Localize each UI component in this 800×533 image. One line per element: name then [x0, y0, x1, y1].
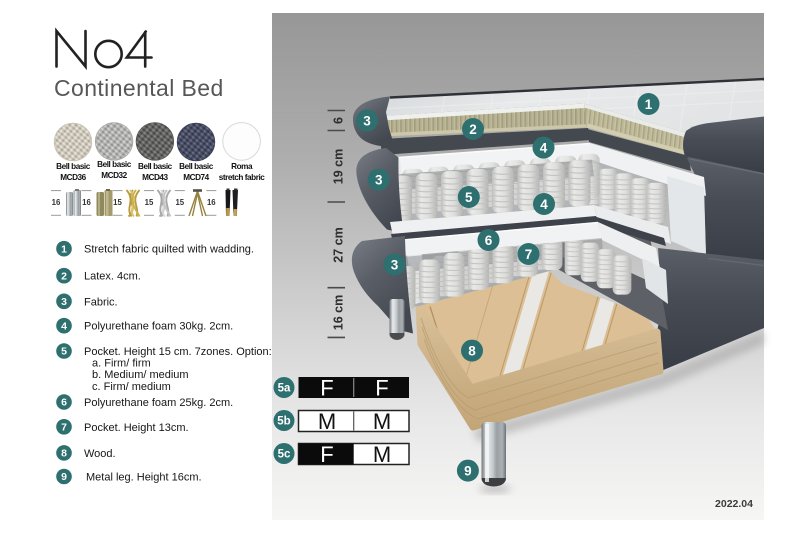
svg-text:Continental Bed: Continental Bed — [54, 75, 224, 101]
svg-text:Latex. 4cm.: Latex. 4cm. — [84, 271, 141, 283]
svg-text:15: 15 — [145, 198, 154, 207]
svg-text:6: 6 — [332, 117, 346, 124]
svg-text:9: 9 — [61, 471, 67, 483]
svg-text:Bell basic: Bell basic — [138, 162, 173, 171]
svg-text:Polyurethane foam 25kg. 2cm.: Polyurethane foam 25kg. 2cm. — [84, 397, 233, 409]
svg-text:16: 16 — [207, 198, 216, 207]
svg-text:16: 16 — [52, 198, 61, 207]
svg-text:Bell basic: Bell basic — [97, 160, 132, 169]
svg-text:b. Medium/ medium: b. Medium/ medium — [92, 369, 189, 381]
svg-text:4: 4 — [540, 140, 548, 155]
svg-text:Bell basic: Bell basic — [56, 162, 91, 171]
svg-text:9: 9 — [464, 463, 472, 478]
svg-text:2: 2 — [61, 270, 67, 282]
svg-text:3: 3 — [61, 296, 67, 308]
svg-text:7: 7 — [61, 422, 67, 434]
svg-text:M: M — [373, 409, 391, 434]
svg-text:Polyurethane foam 30kg. 2cm.: Polyurethane foam 30kg. 2cm. — [84, 321, 233, 333]
svg-text:8: 8 — [61, 448, 67, 460]
svg-text:5a: 5a — [278, 383, 291, 395]
svg-text:16: 16 — [82, 198, 91, 207]
svg-text:c. Firm/ medium: c. Firm/ medium — [92, 381, 171, 393]
svg-text:Wood.: Wood. — [84, 448, 116, 460]
svg-text:F: F — [375, 376, 388, 401]
svg-text:stretch fabric: stretch fabric — [219, 173, 265, 182]
svg-text:MCD36: MCD36 — [60, 173, 86, 182]
svg-text:F: F — [320, 376, 333, 401]
svg-text:6: 6 — [61, 397, 67, 409]
svg-text:M: M — [373, 442, 391, 467]
svg-text:5: 5 — [465, 190, 473, 205]
svg-text:4: 4 — [540, 197, 548, 212]
svg-text:MCD32: MCD32 — [101, 171, 127, 180]
svg-text:16 cm: 16 cm — [332, 295, 346, 330]
svg-text:5: 5 — [61, 346, 67, 358]
svg-text:Pocket. Height 15 cm. 7zones.: Pocket. Height 15 cm. 7zones. Option: — [84, 346, 272, 358]
svg-text:1: 1 — [61, 243, 67, 255]
svg-text:15: 15 — [113, 198, 122, 207]
svg-text:Metal leg. Height 16cm.: Metal leg. Height 16cm. — [86, 472, 202, 484]
svg-text:1: 1 — [645, 97, 653, 112]
svg-text:a. Firm/ firm: a. Firm/ firm — [92, 358, 151, 370]
svg-text:8: 8 — [468, 343, 476, 358]
svg-text:F: F — [320, 442, 333, 467]
svg-text:27 cm: 27 cm — [332, 227, 346, 262]
svg-text:2022.04: 2022.04 — [715, 498, 753, 510]
svg-text:MCD43: MCD43 — [142, 173, 168, 182]
svg-text:M: M — [318, 409, 336, 434]
svg-text:5c: 5c — [278, 449, 291, 461]
svg-text:Bell basic: Bell basic — [179, 162, 214, 171]
svg-text:Fabric.: Fabric. — [84, 296, 118, 308]
svg-text:3: 3 — [363, 113, 371, 128]
svg-text:4: 4 — [61, 320, 67, 332]
svg-text:3: 3 — [391, 257, 399, 272]
svg-text:19 cm: 19 cm — [332, 149, 346, 184]
svg-text:6: 6 — [485, 233, 493, 248]
svg-text:2: 2 — [469, 122, 477, 137]
svg-text:15: 15 — [175, 198, 184, 207]
svg-text:7: 7 — [525, 247, 533, 262]
svg-text:MCD74: MCD74 — [183, 173, 209, 182]
svg-text:Stretch fabric quilted with wa: Stretch fabric quilted with wadding. — [84, 244, 254, 256]
svg-text:3: 3 — [375, 172, 383, 187]
svg-text:Roma: Roma — [231, 162, 253, 171]
svg-text:Pocket. Height 13cm.: Pocket. Height 13cm. — [84, 422, 189, 434]
svg-text:5b: 5b — [277, 416, 290, 428]
